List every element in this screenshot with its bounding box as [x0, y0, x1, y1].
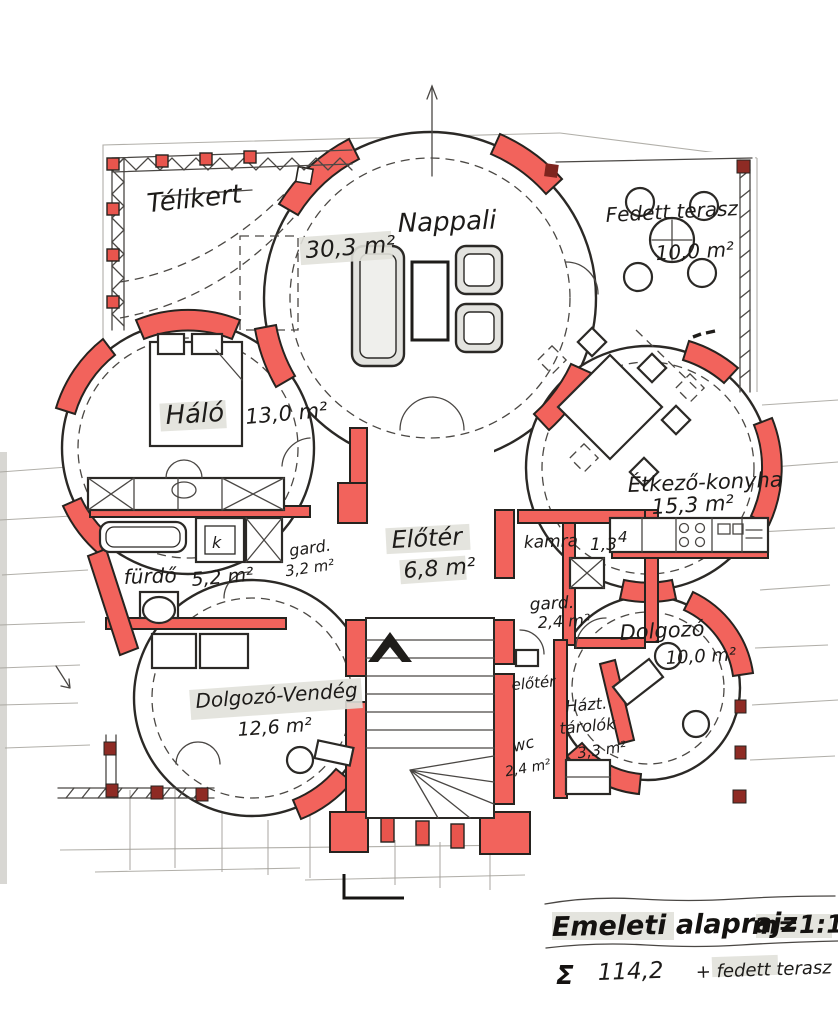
label-nappali: Nappali	[397, 206, 498, 239]
toilet	[143, 597, 175, 623]
label-furdo: fürdő	[123, 563, 177, 589]
sigma-symbol: Σ	[556, 961, 574, 991]
wall-stair-left-foot	[330, 812, 368, 852]
area-gardrob-2: 2,4 m²	[537, 610, 591, 632]
area-eloter: 6,8 m²	[403, 554, 477, 584]
area-kamra: 1,3	[590, 535, 617, 555]
guest-bed-2	[200, 634, 248, 668]
wall-stair-left-a	[346, 620, 366, 676]
floor-plan-page: Télikert Nappali 30,3 m² Fedett terasz 1…	[0, 0, 838, 1024]
area-dolgozo: 10,0 m²	[665, 644, 737, 669]
area-etkezo-konyha: 15,3 m²	[651, 491, 735, 519]
label-halo: Háló	[165, 398, 225, 431]
wall-eloter-kamra	[495, 510, 514, 578]
side-chair	[683, 711, 709, 737]
plan-scale: m=1:100	[752, 909, 838, 940]
annotation-k: k	[212, 533, 222, 552]
wc-basin	[516, 650, 538, 666]
annotation-4: 4	[618, 528, 628, 546]
floor-plan-drawing: Télikert Nappali 30,3 m² Fedett terasz 1…	[0, 0, 838, 1024]
label-kamra: kamra	[523, 531, 578, 553]
pillow-1	[158, 334, 184, 354]
wall-eloter-left-a	[350, 428, 367, 483]
wall-furdo	[106, 618, 286, 629]
label-dolgozo: Dolgozó	[619, 617, 705, 645]
kitchen-counter	[610, 518, 768, 552]
label-eloter-kis: előtér	[511, 672, 557, 694]
title-block: Emeleti alaprajz m=1:100 Σ 114,2 + fedet…	[545, 896, 838, 991]
label-eloter: Előtér	[391, 522, 465, 554]
coffee-table	[412, 262, 448, 340]
wall-dark-notch	[544, 163, 559, 178]
label-hazt-1: Házt.	[565, 693, 608, 716]
wall-stair-right-a	[494, 620, 514, 664]
wardrobe-row	[88, 478, 284, 510]
area-fedett-terasz: 10,0 m²	[655, 237, 735, 265]
total-area: 114,2	[597, 958, 664, 986]
wall-eloter-left-b	[338, 483, 367, 523]
label-wc: wc	[510, 732, 536, 756]
guest-bed-1	[152, 634, 196, 668]
guest-chair	[287, 747, 313, 773]
small-arrow-icon	[56, 666, 70, 688]
total-suffix: + fedett terasz	[695, 957, 832, 983]
staircase	[366, 618, 494, 818]
terrace-chair-3	[624, 263, 652, 291]
